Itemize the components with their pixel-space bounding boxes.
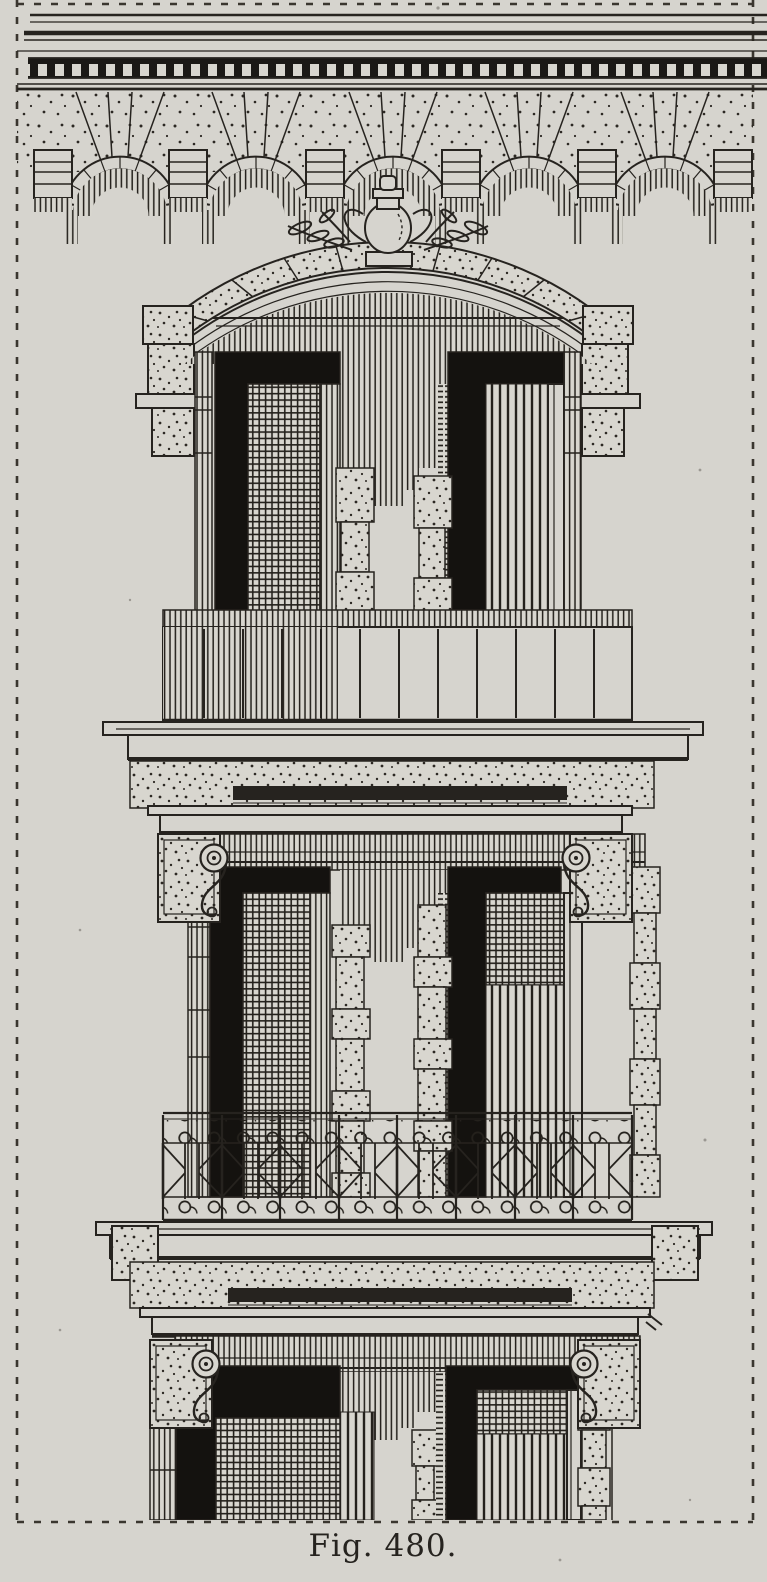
console-bracket bbox=[158, 834, 228, 922]
console-bracket bbox=[571, 1340, 641, 1428]
figure-caption: Fig. 480. bbox=[309, 1528, 458, 1564]
window-sash bbox=[216, 1418, 340, 1520]
recessed-lintel-bar bbox=[233, 786, 567, 800]
window-sash bbox=[486, 893, 564, 985]
right-jamb-quoins bbox=[630, 867, 660, 1197]
window-sash bbox=[243, 893, 310, 1197]
window-shutter bbox=[486, 985, 564, 1197]
upper-right-window bbox=[438, 352, 581, 614]
console-bracket bbox=[563, 834, 633, 922]
hood-cornice bbox=[140, 1308, 662, 1336]
dentil-course bbox=[28, 58, 767, 78]
lower-window-group bbox=[130, 1262, 662, 1520]
window-shutter bbox=[477, 1434, 567, 1520]
upper-left-window bbox=[195, 352, 340, 614]
window-sash bbox=[477, 1390, 567, 1434]
engraving-page: Fig. 480. bbox=[0, 0, 767, 1582]
window-sash bbox=[248, 384, 320, 614]
window-shutter bbox=[486, 384, 548, 614]
central-pier bbox=[336, 468, 452, 614]
balcony-slab-upper bbox=[103, 722, 703, 759]
stippled-band bbox=[130, 761, 654, 808]
console-bracket bbox=[150, 1340, 220, 1428]
hood-cornice bbox=[148, 806, 632, 834]
recessed-lintel-bar bbox=[228, 1288, 572, 1302]
